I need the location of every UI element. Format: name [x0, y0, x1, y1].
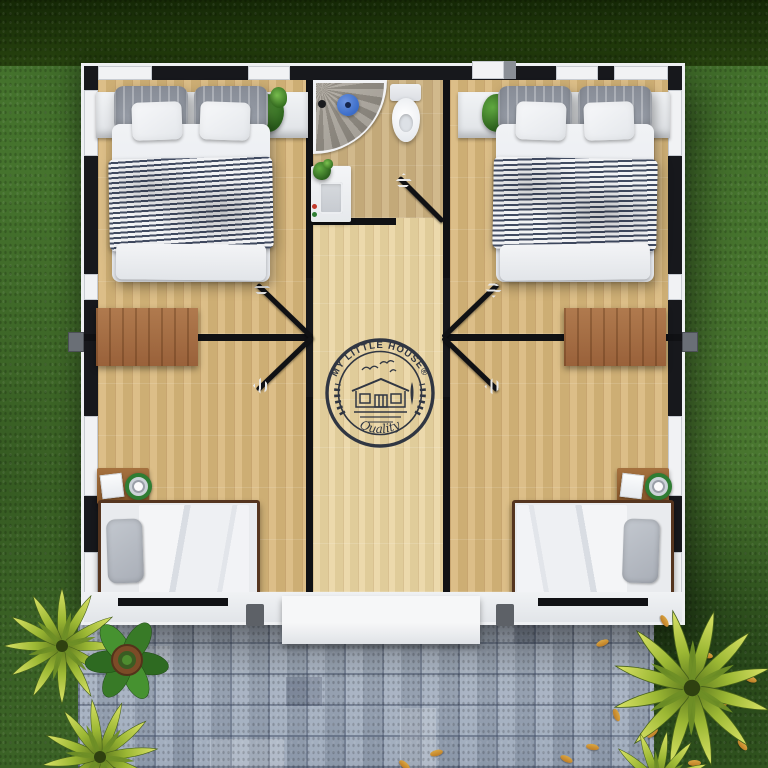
striped-duvet: [108, 157, 274, 252]
stamp-house-drawing: [352, 379, 414, 422]
hallway-wall-right-lower: [443, 397, 450, 592]
stamp-laurel: [337, 384, 423, 414]
toiletry-bottle: [312, 204, 317, 209]
window: [668, 274, 682, 300]
aerial-house-render: △: [0, 0, 768, 768]
breakfast-tray: [125, 473, 152, 500]
striped-duvet: [492, 157, 658, 252]
rooftop-vent: [504, 61, 516, 79]
door-mat: [496, 604, 514, 626]
duvet: [517, 505, 627, 597]
house: △: [84, 66, 682, 622]
double-bed-top-left: [112, 86, 270, 282]
window: [668, 90, 682, 156]
pillow: [622, 518, 660, 583]
window: [84, 274, 98, 300]
nightstand-right: [617, 468, 669, 504]
window: [84, 416, 98, 496]
foot-sheet: [500, 243, 650, 281]
duvet: [139, 505, 249, 597]
palm-tree: [603, 727, 713, 768]
desk-left: [96, 308, 198, 366]
pillow: [199, 101, 250, 141]
hedge-top: [0, 0, 768, 66]
desk-right: [564, 308, 666, 366]
stamp-birds: [362, 361, 396, 372]
window: [556, 66, 598, 80]
pillow: [106, 518, 144, 583]
toiletry-bottle: [312, 212, 317, 217]
stamp-tagline-holder: Quality: [358, 417, 403, 436]
notebook: [100, 473, 125, 500]
hallway-wall-left-lower: [306, 397, 313, 592]
notebook: [620, 473, 645, 500]
nightstand-left: [97, 468, 149, 504]
stamp-tagline: Quality: [358, 417, 403, 436]
paver-tile: [210, 739, 284, 768]
breakfast-tray: [645, 473, 672, 500]
potted-plant: [85, 618, 169, 702]
paver-tile: [286, 677, 322, 706]
entrance-step: [282, 596, 480, 644]
palm-tree: [38, 695, 162, 768]
rooftop-unit: [472, 61, 504, 79]
window: [614, 66, 668, 80]
vanity-plant: [313, 162, 331, 180]
pillow: [131, 101, 182, 141]
double-bed-top-right: [496, 86, 654, 282]
shower-drain-cap: [337, 94, 359, 116]
bottom-wall-accent-left: [118, 598, 228, 606]
foot-sheet: [116, 243, 266, 281]
pillow: [515, 101, 566, 141]
sink-vanity: [311, 166, 351, 222]
brand-stamp: MY LITTLE HOUSE® Quality: [324, 337, 436, 449]
hallway-wall-right-upper: [443, 80, 450, 278]
pillow: [583, 101, 634, 141]
utility-box-left: [68, 332, 84, 352]
toilet: [390, 84, 422, 144]
window: [98, 66, 152, 80]
window: [248, 66, 290, 80]
paver-tile: [400, 708, 436, 768]
utility-box-right: [682, 332, 698, 352]
sink-basin: [319, 182, 343, 214]
toilet-seat-opening: [399, 114, 413, 132]
door-mat: [246, 604, 264, 626]
shower-head: [318, 100, 326, 108]
